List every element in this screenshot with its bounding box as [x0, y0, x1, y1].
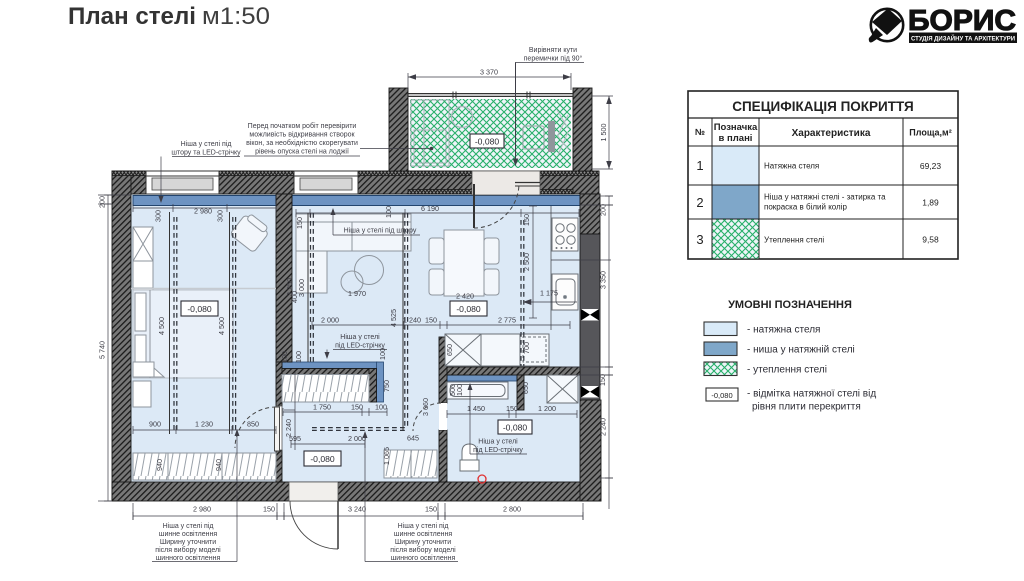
svg-text:Ніша у стелі під штору: Ніша у стелі під штору [344, 227, 417, 235]
svg-text:-0,080: -0,080 [456, 304, 481, 314]
svg-text:-0,080: -0,080 [310, 454, 335, 464]
svg-text:Перед початком робіт перевіри: Перед початком робіт перевірити [248, 122, 357, 130]
svg-text:2 500: 2 500 [522, 253, 531, 271]
svg-text:м1:50: м1:50 [202, 3, 270, 30]
svg-text:СТУДІЯ ДИЗАЙНУ ТА АРХІТЕКТУРИ: СТУДІЯ ДИЗАЙНУ ТА АРХІТЕКТУРИ [911, 34, 1015, 43]
svg-text:штору та LED-стрічку: штору та LED-стрічку [171, 149, 241, 157]
svg-text:УМОВНІ ПОЗНАЧЕННЯ: УМОВНІ ПОЗНАЧЕННЯ [728, 299, 852, 311]
svg-text:-0,080: -0,080 [187, 304, 212, 314]
svg-text:200: 200 [98, 196, 107, 208]
svg-text:100: 100 [384, 206, 393, 218]
svg-text:Ніша у стелі під: Ніша у стелі під [163, 522, 214, 530]
svg-text:100: 100 [375, 403, 387, 412]
svg-text:- утеплення стелі: - утеплення стелі [747, 365, 827, 376]
svg-text:850: 850 [247, 420, 259, 429]
svg-text:під LED-стрічку: під LED-стрічку [335, 342, 385, 350]
svg-text:200: 200 [599, 204, 608, 216]
svg-text:1 200: 1 200 [538, 404, 556, 413]
svg-text:Ніша у стелі під: Ніша у стелі під [398, 522, 449, 530]
svg-text:Ширину уточнити: Ширину уточнити [395, 539, 451, 546]
svg-text:150: 150 [263, 505, 275, 514]
svg-text:1 230: 1 230 [195, 420, 213, 429]
svg-text:150: 150 [598, 374, 607, 386]
svg-text:в плані: в плані [719, 133, 753, 144]
svg-text:Характеристика: Характеристика [792, 128, 871, 139]
svg-text:2: 2 [696, 195, 703, 210]
svg-text:1 500: 1 500 [599, 124, 608, 142]
svg-text:№: № [695, 127, 705, 137]
svg-text:шинного освітлення: шинного освітлення [156, 554, 221, 562]
svg-text:шинне освітлення: шинне освітлення [394, 530, 453, 538]
svg-text:План стелі: План стелі [68, 3, 196, 30]
svg-text:- натяжна стеля: - натяжна стеля [747, 325, 820, 336]
svg-text:Натяжна стеля: Натяжна стеля [764, 162, 819, 171]
svg-text:1 750: 1 750 [313, 403, 331, 412]
svg-text:150: 150 [295, 217, 304, 229]
svg-text:вікон, за необхідністю скорегу: вікон, за необхідністю скорегувати [246, 139, 358, 147]
svg-text:2 000: 2 000 [321, 316, 339, 325]
svg-text:100: 100 [455, 384, 464, 396]
svg-text:Утеплення стелі: Утеплення стелі [764, 236, 824, 245]
svg-text:шинне освітлення: шинне освітлення [159, 530, 218, 538]
svg-text:900: 900 [149, 420, 161, 429]
svg-text:100: 100 [280, 351, 289, 363]
svg-text:1 175: 1 175 [540, 289, 558, 298]
svg-text:150: 150 [506, 404, 518, 413]
svg-text:2 980: 2 980 [193, 505, 211, 514]
svg-text:2 240: 2 240 [284, 419, 293, 437]
svg-text:150: 150 [351, 403, 363, 412]
svg-text:3 350: 3 350 [599, 271, 608, 289]
svg-text:100: 100 [294, 351, 303, 363]
svg-text:1 970: 1 970 [348, 289, 366, 298]
svg-text:- відмітка натяжної стелі від: - відмітка натяжної стелі від [747, 389, 876, 400]
svg-text:2 775: 2 775 [498, 316, 516, 325]
svg-text:2 800: 2 800 [503, 505, 521, 514]
svg-text:Вирівняти кути: Вирівняти кути [529, 46, 577, 54]
svg-text:3: 3 [696, 232, 703, 247]
svg-text:Позначка: Позначка [714, 122, 758, 133]
svg-text:після вибору моделі: після вибору моделі [390, 546, 456, 554]
svg-text:-0,080: -0,080 [475, 137, 500, 147]
svg-text:перемички під 90°: перемички під 90° [524, 55, 583, 63]
svg-text:шинного освітлення: шинного освітлення [391, 554, 456, 562]
svg-text:рівень опуска стелі на лоджії: рівень опуска стелі на лоджії [255, 148, 349, 156]
svg-text:400: 400 [290, 291, 299, 303]
svg-text:2 240: 2 240 [599, 418, 608, 436]
svg-text:6 190: 6 190 [421, 204, 439, 213]
svg-text:2 420: 2 420 [456, 292, 474, 301]
svg-text:Ніша у стелі: Ніша у стелі [340, 333, 380, 341]
svg-text:300: 300 [216, 210, 225, 222]
svg-text:69,23: 69,23 [920, 161, 942, 171]
svg-text:Ніша у стелі під: Ніша у стелі під [181, 140, 232, 148]
svg-text:2 980: 2 980 [194, 207, 212, 216]
svg-text:4 500: 4 500 [217, 317, 226, 335]
svg-text:940: 940 [155, 459, 164, 471]
svg-text:645: 645 [407, 434, 419, 443]
svg-text:під LED-стрічку: під LED-стрічку [473, 446, 523, 454]
svg-text:3 370: 3 370 [480, 68, 498, 77]
svg-text:рівня плити перекриття: рівня плити перекриття [752, 402, 861, 413]
svg-text:-0,080: -0,080 [503, 423, 528, 433]
svg-text:1 065: 1 065 [382, 447, 391, 465]
svg-text:Ніша у натяжні стелі -: Ніша у натяжні стелі - затирка та [764, 193, 886, 202]
svg-text:1 240: 1 240 [403, 316, 421, 325]
svg-text:БОРИС: БОРИС [908, 5, 1016, 37]
svg-text:3 060: 3 060 [421, 398, 430, 416]
svg-text:650: 650 [521, 382, 530, 394]
svg-text:150: 150 [425, 316, 437, 325]
svg-text:2 000: 2 000 [348, 434, 366, 443]
svg-text:750: 750 [382, 380, 391, 392]
svg-text:150: 150 [522, 214, 531, 226]
svg-text:5 740: 5 740 [98, 341, 107, 359]
svg-text:940: 940 [214, 459, 223, 471]
svg-text:СПЕЦИФІКАЦІЯ ПОКРИТТЯ: СПЕЦИФІКАЦІЯ ПОКРИТТЯ [732, 99, 914, 114]
svg-text:Ніша у стелі: Ніша у стелі [478, 438, 518, 446]
svg-text:300: 300 [154, 210, 163, 222]
svg-text:700: 700 [522, 342, 531, 354]
svg-text:150: 150 [425, 505, 437, 514]
svg-text:1: 1 [696, 158, 703, 173]
svg-text:-0,080: -0,080 [711, 391, 732, 400]
svg-text:650: 650 [445, 344, 454, 356]
svg-text:4 525: 4 525 [389, 309, 398, 327]
svg-text:можливість відкривання створок: можливість відкривання створок [249, 131, 355, 139]
svg-text:3 240: 3 240 [348, 505, 366, 514]
svg-text:після вибору моделі: після вибору моделі [155, 546, 221, 554]
svg-text:4 500: 4 500 [157, 317, 166, 335]
svg-text:покраска в білий колір: покраска в білий колір [764, 203, 847, 212]
svg-text:- ниша у натяжній стелі: - ниша у натяжній стелі [747, 345, 855, 356]
svg-text:Площа,м²: Площа,м² [909, 128, 951, 138]
svg-text:Ширину уточнити: Ширину уточнити [160, 539, 216, 546]
svg-text:9,58: 9,58 [922, 235, 939, 245]
svg-text:1,89: 1,89 [922, 198, 939, 208]
